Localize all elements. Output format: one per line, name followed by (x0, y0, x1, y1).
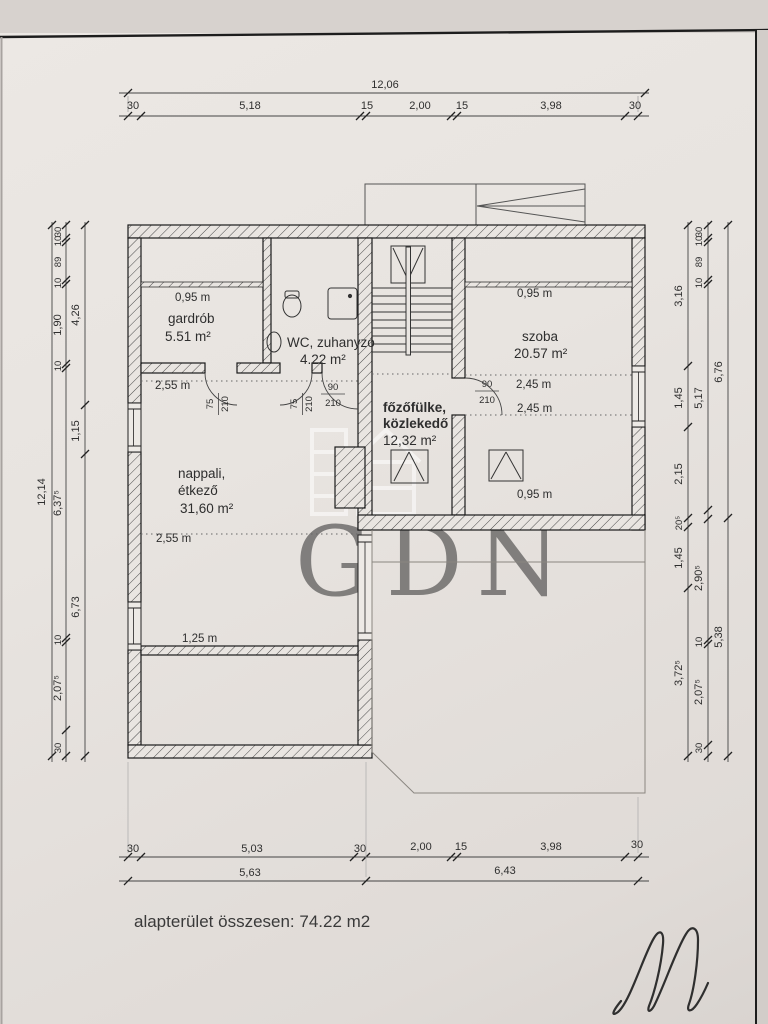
stair-rail (406, 247, 411, 355)
gardrob-area: 5.51 m² (165, 329, 211, 344)
gardrob-knee-label: 0,95 m (175, 292, 210, 304)
skylight-fozofulke (391, 450, 428, 483)
svg-text:30: 30 (694, 743, 705, 754)
wall-left-middle (128, 452, 141, 602)
svg-text:30: 30 (631, 839, 643, 851)
svg-text:3,98: 3,98 (540, 841, 561, 853)
dim-right: 3,16 1,45 2,15 20⁵ 1,45 3,72⁵ 30 10 89 1… (673, 221, 732, 762)
window-left-1 (128, 403, 141, 452)
svg-text:30: 30 (127, 843, 139, 855)
svg-text:2,90⁵: 2,90⁵ (693, 565, 705, 591)
svg-text:3,72⁵: 3,72⁵ (673, 660, 685, 686)
svg-text:5,63: 5,63 (239, 867, 260, 879)
window-center (358, 535, 372, 640)
nappali-area: 31,60 m² (180, 501, 234, 516)
dim-top-seg-2: 15 (361, 100, 373, 112)
knee-wall-gardrob (141, 282, 263, 287)
svg-text:2,00: 2,00 (410, 841, 431, 853)
wall-corridor-a (141, 363, 205, 373)
svg-text:1,45: 1,45 (673, 547, 685, 568)
dim-top-seg-6: 30 (629, 100, 641, 112)
svg-text:20⁵: 20⁵ (674, 516, 685, 531)
szoba-area: 20.57 m² (514, 346, 568, 361)
fozofulke-area: 12,32 m² (383, 433, 437, 448)
szoba-headroom1-label: 2,45 m (516, 379, 551, 391)
shower-tray (328, 288, 357, 319)
svg-text:30: 30 (354, 843, 366, 855)
dim-left-total: 12,14 (36, 478, 48, 506)
svg-text:10: 10 (53, 236, 64, 247)
svg-text:2,07⁵: 2,07⁵ (52, 675, 64, 701)
svg-text:10: 10 (53, 278, 64, 289)
skylight-szoba (489, 450, 523, 481)
dim-left: 12,14 30 10 89 10 1,90 10 6,37⁵ 10 2,07⁵… (36, 221, 89, 762)
svg-text:3,16: 3,16 (673, 285, 685, 306)
szoba-knee-label: 0,95 m (517, 288, 552, 300)
svg-text:30: 30 (53, 227, 64, 238)
door-labels: 75 210 75 210 90 210 90 210 (205, 379, 499, 415)
staircase (372, 246, 452, 355)
svg-text:89: 89 (53, 257, 64, 268)
wall-szoba-left-lower (452, 415, 465, 515)
window-left-2 (128, 602, 141, 650)
svg-text:2,07⁵: 2,07⁵ (693, 679, 705, 705)
wall-left-lower (128, 650, 141, 745)
wall-low-divider (141, 646, 358, 655)
svg-text:10: 10 (53, 361, 64, 372)
svg-text:6,73: 6,73 (70, 596, 82, 617)
fozofulke-name2: közlekedő (383, 416, 448, 431)
wall-lowroom-right (358, 640, 372, 745)
svg-text:4,26: 4,26 (70, 304, 82, 325)
wall-right-upper (632, 238, 645, 366)
chimney-block (335, 447, 365, 508)
nappali-name1: nappali, (178, 466, 225, 481)
svg-text:5,03: 5,03 (241, 843, 262, 855)
svg-text:5,17: 5,17 (693, 387, 705, 408)
wc-area: 4.22 m² (300, 352, 346, 367)
svg-text:1,15: 1,15 (70, 420, 82, 441)
nappali-headroom1-label: 2,55 m (155, 380, 190, 392)
svg-text:75: 75 (205, 399, 216, 410)
svg-text:10: 10 (694, 236, 705, 247)
signature (613, 928, 708, 1014)
svg-text:10: 10 (694, 278, 705, 289)
dim-top-total: 12,06 (371, 79, 399, 91)
wall-left-upper (128, 238, 141, 403)
knee-wall-szoba (465, 282, 632, 287)
svg-text:10: 10 (694, 637, 705, 648)
fozofulke-name1: főzőfülke, (383, 400, 446, 415)
roof-outline (365, 184, 585, 226)
dim-top-seg-1: 5,18 (239, 100, 260, 112)
svg-text:10: 10 (53, 635, 64, 646)
svg-text:6,43: 6,43 (494, 865, 515, 877)
svg-text:5,38: 5,38 (713, 626, 725, 647)
floorplan-sheet: GDN 12,06 30 5,18 15 2,00 15 3,98 30 (0, 0, 768, 1024)
wall-corridor-b (237, 363, 280, 373)
shower-drain (348, 294, 351, 297)
svg-text:1,45: 1,45 (673, 387, 685, 408)
svg-text:89: 89 (694, 257, 705, 268)
dim-top: 12,06 30 5,18 15 2,00 15 3,98 30 (119, 79, 649, 120)
dim-bottom: 30 5,03 30 2,00 15 3,98 30 5,63 6,43 (119, 762, 649, 885)
stair-treads (372, 288, 452, 352)
door-label-szoba: 90 210 (475, 379, 499, 406)
dim-top-seg-0: 30 (127, 100, 139, 112)
wc-name: WC, zuhanyzó (287, 335, 375, 350)
dim-top-seg-4: 15 (456, 100, 468, 112)
svg-text:75: 75 (289, 399, 300, 410)
svg-text:2,15: 2,15 (673, 463, 685, 484)
szoba-name: szoba (522, 329, 559, 344)
svg-text:210: 210 (325, 398, 341, 409)
nappali-lowwall-label: 1,25 m (182, 633, 217, 645)
wall-bottom (128, 745, 372, 758)
svg-text:6,76: 6,76 (713, 361, 725, 382)
gardrob-name: gardrób (168, 311, 215, 326)
svg-text:210: 210 (479, 395, 495, 406)
door-label-gardrob: 75 210 (205, 393, 231, 415)
wall-center-bottom (358, 515, 645, 530)
svg-text:90: 90 (328, 382, 339, 393)
window-right (632, 366, 645, 427)
svg-text:30: 30 (53, 743, 64, 754)
svg-text:30: 30 (694, 227, 705, 238)
nappali-name2: étkező (178, 483, 218, 498)
nappali-headroom2-label: 2,55 m (156, 533, 191, 545)
total-area-text: alapterület összesen: 74.22 m2 (134, 912, 370, 931)
page-right-edge (757, 30, 768, 1024)
svg-text:210: 210 (304, 396, 315, 412)
doors (205, 373, 502, 415)
page-top-edge (0, 0, 768, 33)
svg-text:210: 210 (220, 396, 231, 412)
szoba-skylight-label: 0,95 m (517, 489, 552, 501)
svg-text:90: 90 (482, 379, 493, 390)
szoba-headroom2-label: 2,45 m (517, 403, 552, 415)
svg-text:1,90: 1,90 (52, 314, 64, 335)
svg-text:6,37⁵: 6,37⁵ (52, 490, 64, 516)
dim-top-seg-3: 2,00 (409, 100, 430, 112)
dim-top-seg-5: 3,98 (540, 100, 561, 112)
wall-szoba-left-upper (452, 238, 465, 378)
svg-text:15: 15 (455, 841, 467, 853)
wall-top (128, 225, 645, 238)
